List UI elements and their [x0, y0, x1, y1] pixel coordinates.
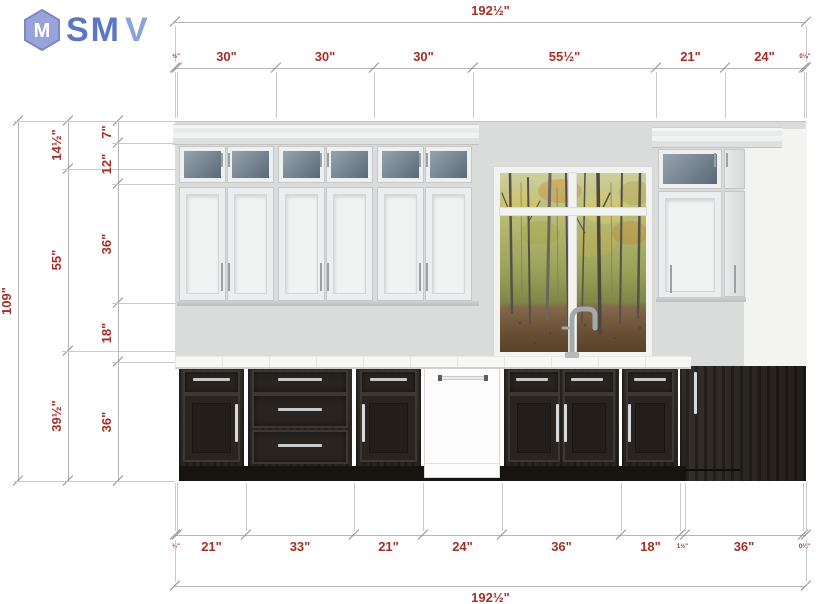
- dimension-line-left-mid: [68, 121, 69, 481]
- drawer-front: [252, 430, 348, 464]
- glass-door: [179, 146, 226, 183]
- door-handle: [426, 153, 428, 167]
- extension-line: [806, 72, 807, 118]
- extension-line: [354, 483, 355, 531]
- wall-cabinet-30in-1: [177, 143, 274, 303]
- extension-line: [175, 540, 176, 582]
- drawer-pull: [278, 408, 322, 411]
- drawer-base-33in: [248, 366, 352, 466]
- sink-base-36in: [504, 366, 619, 466]
- base-cabinet-18in: [622, 366, 678, 466]
- dimension-label: 192½": [451, 591, 531, 604]
- drawer-pull: [193, 378, 230, 381]
- extension-line: [473, 72, 474, 118]
- dimension-label: 36": [522, 540, 602, 554]
- extension-line: [621, 483, 622, 531]
- wall-cabinet-30in-2: [276, 143, 373, 303]
- extension-line: [680, 483, 681, 531]
- extension-line: [246, 483, 247, 531]
- door-handle: [419, 263, 421, 291]
- glass-insert: [382, 151, 419, 178]
- glass-insert: [663, 154, 717, 184]
- shaker-door: [377, 187, 424, 301]
- glass-door: [377, 146, 424, 183]
- door-handle: [628, 404, 631, 442]
- drawer-front: [252, 394, 348, 428]
- extension-line: [112, 362, 175, 363]
- shaker-door: [326, 187, 373, 301]
- base-cabinet-21in-left: [179, 366, 244, 466]
- extension-line: [806, 540, 807, 582]
- door-panel: [517, 403, 551, 453]
- glass-door: [425, 146, 472, 183]
- door-panel: [369, 403, 408, 453]
- cabinet-door: [508, 394, 560, 462]
- glass-door: [227, 146, 274, 183]
- dimension-line-top-segments: [175, 68, 806, 69]
- dimension-line-bottom-segments: [175, 535, 806, 536]
- extension-line: [112, 143, 175, 144]
- dimension-label: 39½": [50, 376, 64, 456]
- door-panel: [384, 194, 417, 294]
- door-handle: [327, 263, 329, 291]
- extension-line: [112, 303, 175, 304]
- drawer-front: [360, 370, 417, 394]
- extension-line: [112, 184, 175, 185]
- dimension-line-left-overall: [18, 121, 19, 481]
- door-handle: [320, 153, 322, 167]
- door-handle: [235, 404, 238, 442]
- door-handle: [694, 372, 697, 414]
- dimension-label: 192½": [451, 4, 531, 18]
- glass-door: [326, 146, 373, 183]
- door-handle: [419, 153, 421, 167]
- drawer-pull: [516, 378, 548, 381]
- dimension-label: 30": [285, 50, 365, 64]
- dimension-label: 24": [423, 540, 503, 554]
- drawer-front: [252, 370, 348, 394]
- door-handle: [564, 404, 567, 442]
- logo-text-sm: SM: [66, 11, 121, 50]
- glass-insert: [331, 151, 368, 178]
- door-handle: [228, 153, 230, 167]
- extension-line: [175, 72, 176, 118]
- dimension-label: 21": [651, 50, 731, 64]
- door-handle: [670, 265, 672, 293]
- extension-line: [803, 483, 804, 531]
- dimension-label: 33": [260, 540, 340, 554]
- door-handle: [556, 404, 559, 442]
- door-handle: [228, 263, 230, 291]
- shaker-door: [227, 187, 274, 301]
- door-handle: [726, 153, 728, 167]
- door-handle: [714, 153, 716, 167]
- glass-door: [278, 146, 325, 183]
- dishwasher-panel: [424, 366, 500, 478]
- extension-line: [423, 483, 424, 531]
- dimension-label: 12": [100, 124, 114, 204]
- drawer-front: [563, 370, 615, 394]
- glass-insert: [184, 151, 221, 178]
- door-panel: [635, 403, 665, 453]
- door-panel: [234, 194, 267, 294]
- door-handle: [426, 263, 428, 291]
- dishwasher-handle: [441, 376, 487, 380]
- cabinet-bottom-shadow: [177, 301, 479, 306]
- extension-line: [177, 72, 178, 118]
- dimension-line-bottom-overall: [175, 586, 806, 587]
- dimension-line-top-overall: [175, 22, 806, 23]
- dimension-label: 55½": [525, 50, 605, 64]
- panel-shadow-line: [686, 469, 740, 471]
- dimension-label: 21": [349, 540, 429, 554]
- cabinet-door: [626, 394, 674, 462]
- smv-logo-icon: M: [22, 8, 62, 52]
- door-panel: [432, 194, 465, 294]
- svg-text:M: M: [34, 20, 51, 42]
- sink-faucet: [548, 300, 604, 358]
- door-handle: [362, 404, 365, 442]
- door-panel: [192, 403, 231, 453]
- glass-insert: [430, 151, 467, 178]
- drawer-front: [183, 370, 240, 394]
- crown-molding-left: [173, 124, 479, 145]
- door-panel: [665, 198, 715, 292]
- glass-insert: [283, 151, 320, 178]
- extension-line: [804, 72, 805, 118]
- cabinet-bottom-shadow: [656, 297, 746, 302]
- shaker-door: [278, 187, 325, 301]
- door-handle: [327, 153, 329, 167]
- cabinet-door: [360, 394, 417, 462]
- dishwasher-kick-line: [425, 463, 499, 464]
- smv-logo: M SMV: [22, 8, 148, 52]
- crown-molding-right: [652, 127, 782, 148]
- dimension-label: 0¼": [765, 540, 825, 554]
- dimension-label: 18": [100, 293, 114, 373]
- shaker-door: [179, 187, 226, 301]
- extension-line: [685, 483, 686, 531]
- countertop: [175, 356, 691, 369]
- drawer-front: [508, 370, 560, 394]
- drawer-pull: [278, 444, 322, 447]
- drawer-pull: [634, 378, 666, 381]
- cabinet-door: [563, 394, 615, 462]
- handle-mount: [484, 375, 488, 381]
- extension-line: [112, 481, 175, 482]
- drawer-pull: [571, 378, 603, 381]
- dimension-label: 36": [100, 204, 114, 284]
- glass-door: [658, 149, 722, 189]
- extension-line: [175, 483, 176, 531]
- extension-line: [806, 483, 807, 531]
- extension-line: [374, 72, 375, 118]
- base-cabinet-21in-right: [356, 366, 421, 466]
- door-panel: [572, 403, 606, 453]
- handle-mount: [438, 375, 442, 381]
- dimension-label: 30": [384, 50, 464, 64]
- door-panel: [285, 194, 318, 294]
- window-mullion: [500, 208, 646, 215]
- drawer-front: [626, 370, 674, 394]
- extension-line: [177, 483, 178, 531]
- dimension-label: 30": [187, 50, 267, 64]
- drawer-pull: [278, 378, 322, 381]
- door-handle: [221, 263, 223, 291]
- door-panel: [186, 194, 219, 294]
- door-handle: [221, 153, 223, 167]
- door-handle: [320, 263, 322, 291]
- extension-line: [502, 483, 503, 531]
- logo-text-v: V: [125, 11, 148, 50]
- side-panel-white: [743, 129, 807, 366]
- extension-line: [112, 121, 175, 122]
- dimension-label: 36": [100, 382, 114, 462]
- extension-line: [276, 72, 277, 118]
- door-handle: [734, 265, 736, 293]
- dimension-label: 109": [0, 261, 14, 341]
- drawer-pull: [370, 378, 407, 381]
- dimension-label: 55": [50, 220, 64, 300]
- kitchen-elevation-screenshot: M SMV: [0, 0, 825, 604]
- glass-insert: [232, 151, 269, 178]
- end-panel-dark-36in: [686, 366, 806, 481]
- cabinet-door: [183, 394, 240, 462]
- dimension-label: 0¼": [765, 50, 825, 64]
- shaker-door: [658, 191, 722, 299]
- extension-line: [656, 72, 657, 118]
- shaker-door: [425, 187, 472, 301]
- dimension-label: 21": [172, 540, 252, 554]
- wall-cabinet-30in-3: [375, 143, 472, 303]
- door-panel: [333, 194, 366, 294]
- extension-line: [725, 72, 726, 118]
- dimension-label: 14½": [50, 105, 64, 185]
